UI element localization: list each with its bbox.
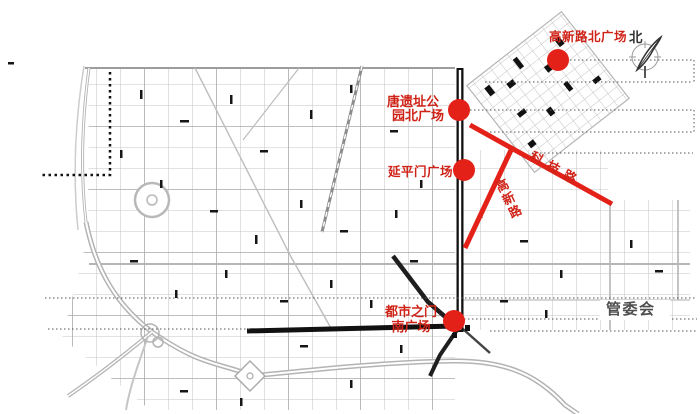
label-line: 都市之门 [383, 304, 439, 319]
label-yanpingmen-plaza: 延平门广场 [388, 161, 453, 180]
label-north: 北 [629, 26, 643, 46]
marker-city-gate-south-plaza[interactable] [443, 310, 465, 332]
label-line: 园北广场 [392, 109, 444, 123]
street-map-base [0, 0, 700, 414]
label-gaoxin-road-north-plaza: 高新路北广场 [549, 26, 627, 45]
label-line: 唐遗址公 [387, 94, 439, 109]
roundabout [135, 183, 169, 217]
marker-yanpingmen-plaza[interactable] [453, 159, 475, 181]
map-figure: 高新路北广场 北 唐遗址公 园北广场 延平门广场 都市之门 南广场 管委会 科技… [0, 0, 700, 414]
label-management-committee: 管委会 [606, 298, 656, 319]
label-tang-relic-park-north-plaza: 唐遗址公 园北广场 [387, 95, 444, 123]
label-line: 南广场 [383, 319, 439, 334]
label-city-gate-south-plaza: 都市之门 南广场 [383, 304, 439, 334]
marker-tang-relic-park-north-plaza[interactable] [448, 99, 470, 121]
marker-gaoxin-road-north-plaza[interactable] [547, 49, 569, 71]
